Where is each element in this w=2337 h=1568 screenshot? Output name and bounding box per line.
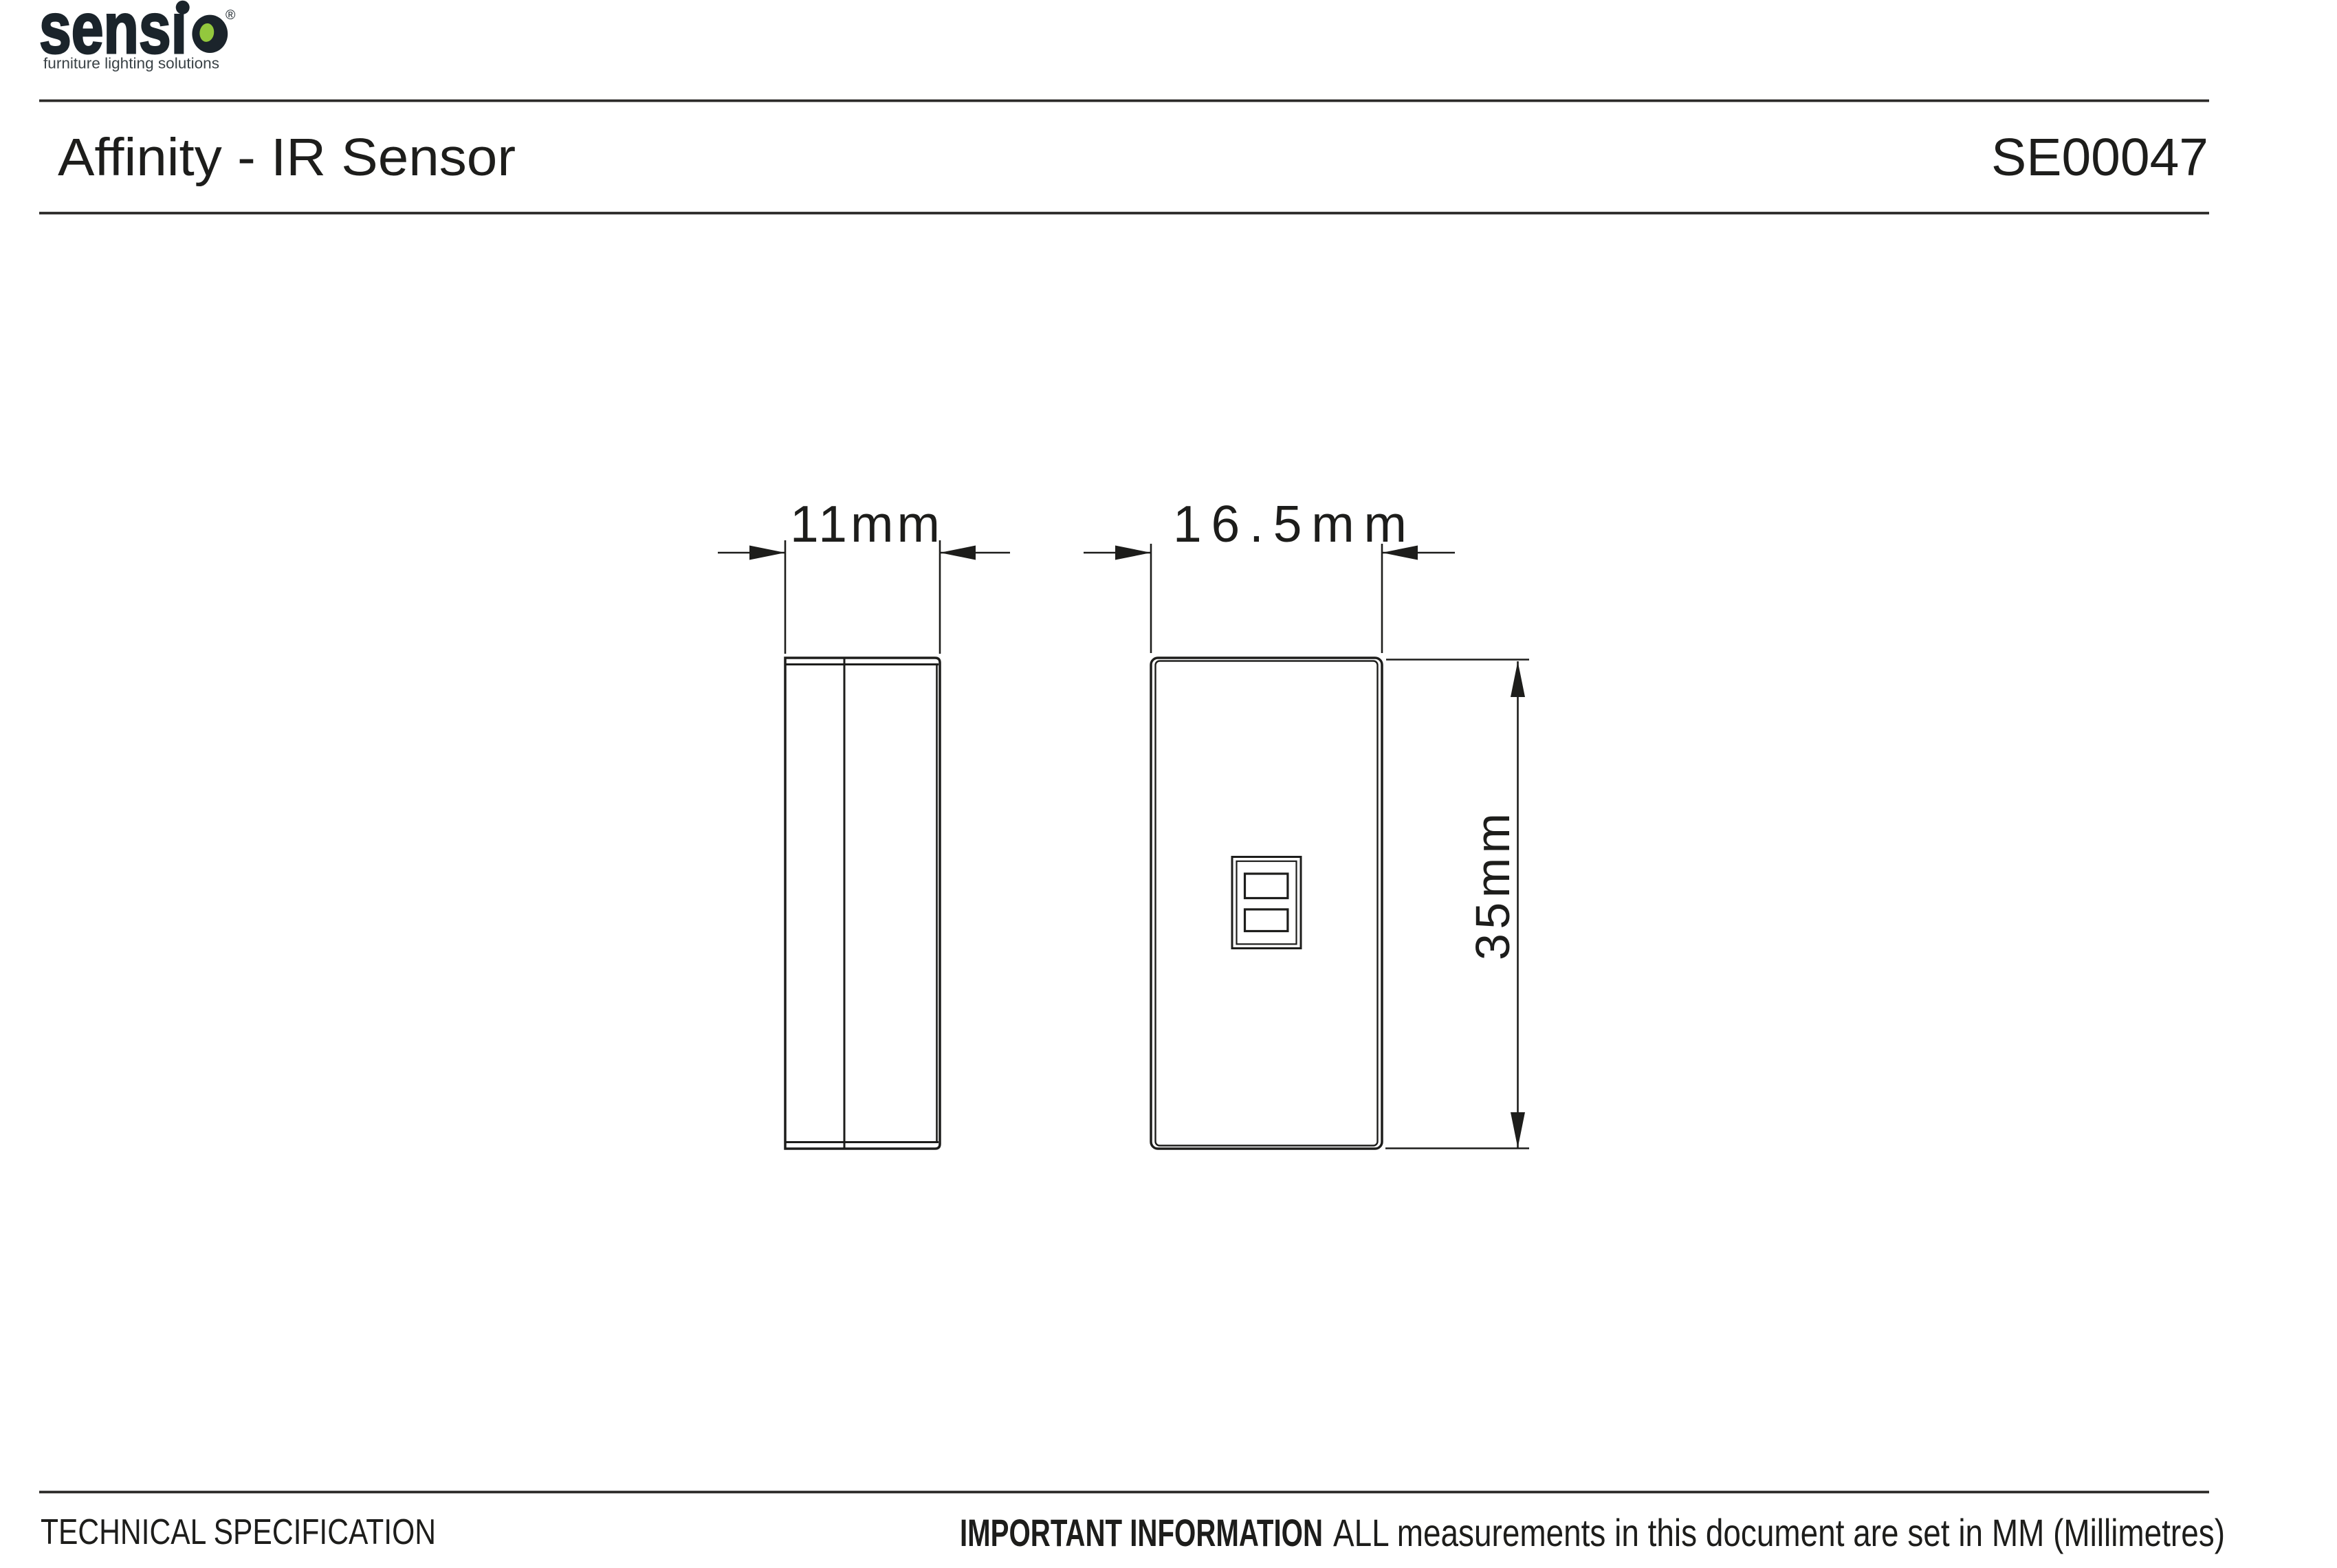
svg-text:TECHNICAL SPECIFICATION: TECHNICAL SPECIFICATION [41, 1512, 436, 1552]
svg-text:®: ® [226, 8, 236, 23]
svg-text:35mm: 35mm [1466, 813, 1519, 960]
svg-text:SE00047: SE00047 [1991, 128, 2208, 187]
svg-text:IMPORTANT INFORMATION: IMPORTANT INFORMATION [960, 1511, 1323, 1554]
svg-text:11mm: 11mm [790, 495, 940, 553]
svg-text:Affinity - IR Sensor: Affinity - IR Sensor [58, 128, 516, 187]
svg-text:furniture lighting solutions: furniture lighting solutions [43, 55, 219, 72]
svg-text:ALL measurements in this docum: ALL measurements in this document are se… [1333, 1511, 2225, 1554]
